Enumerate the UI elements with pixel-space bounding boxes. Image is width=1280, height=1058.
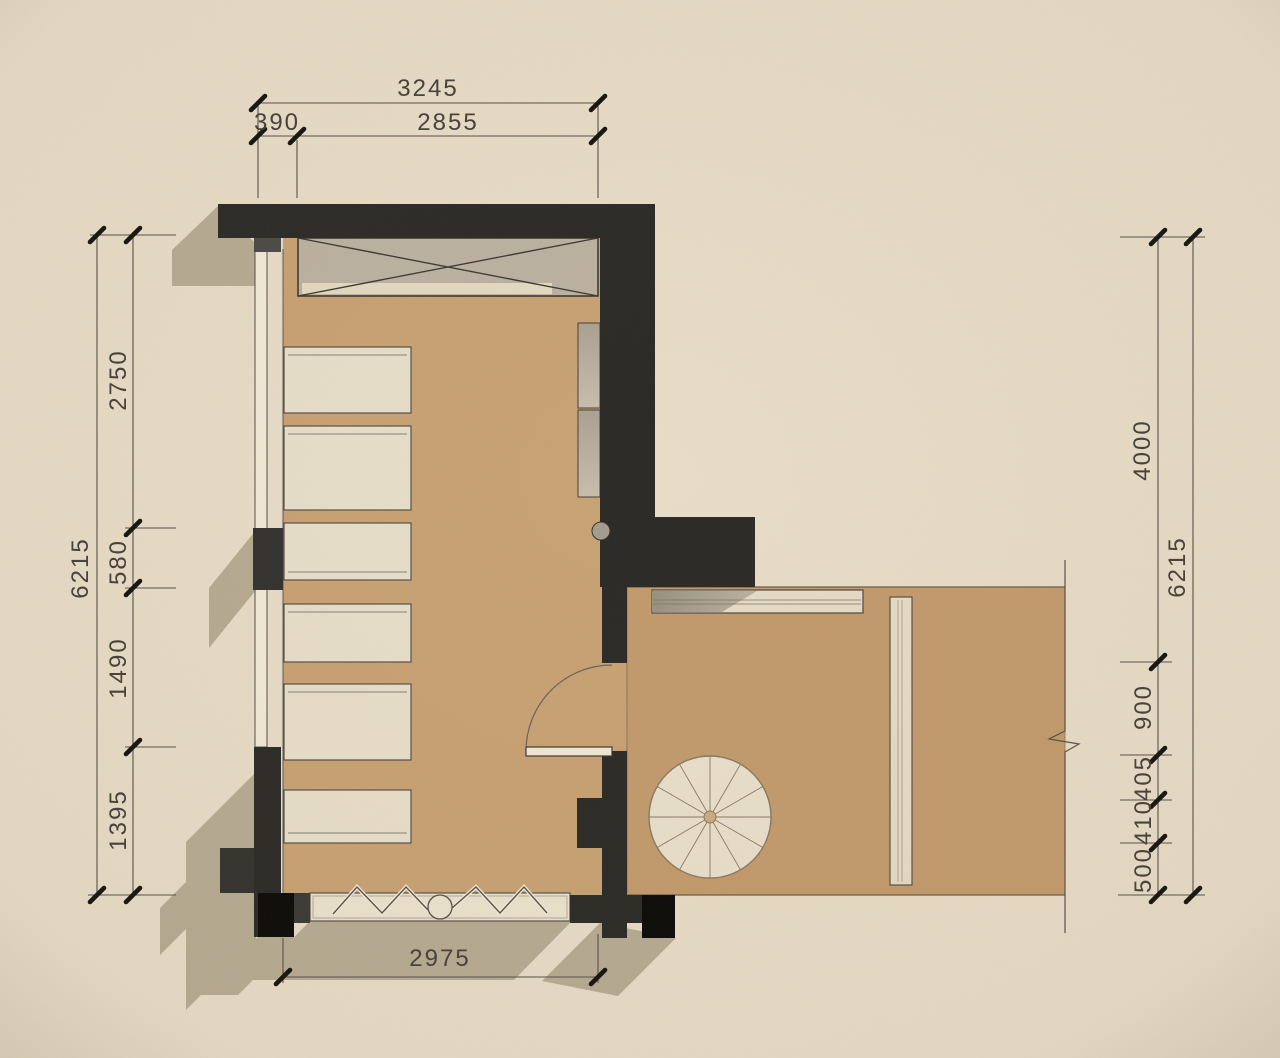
- floor-plan-page: 3245 390 2855 2750 580 1490 1395 6215 40…: [0, 0, 1280, 1058]
- vignette-overlay: [0, 0, 1280, 1058]
- floor-plan-svg: 3245 390 2855 2750 580 1490 1395 6215 40…: [0, 0, 1280, 1058]
